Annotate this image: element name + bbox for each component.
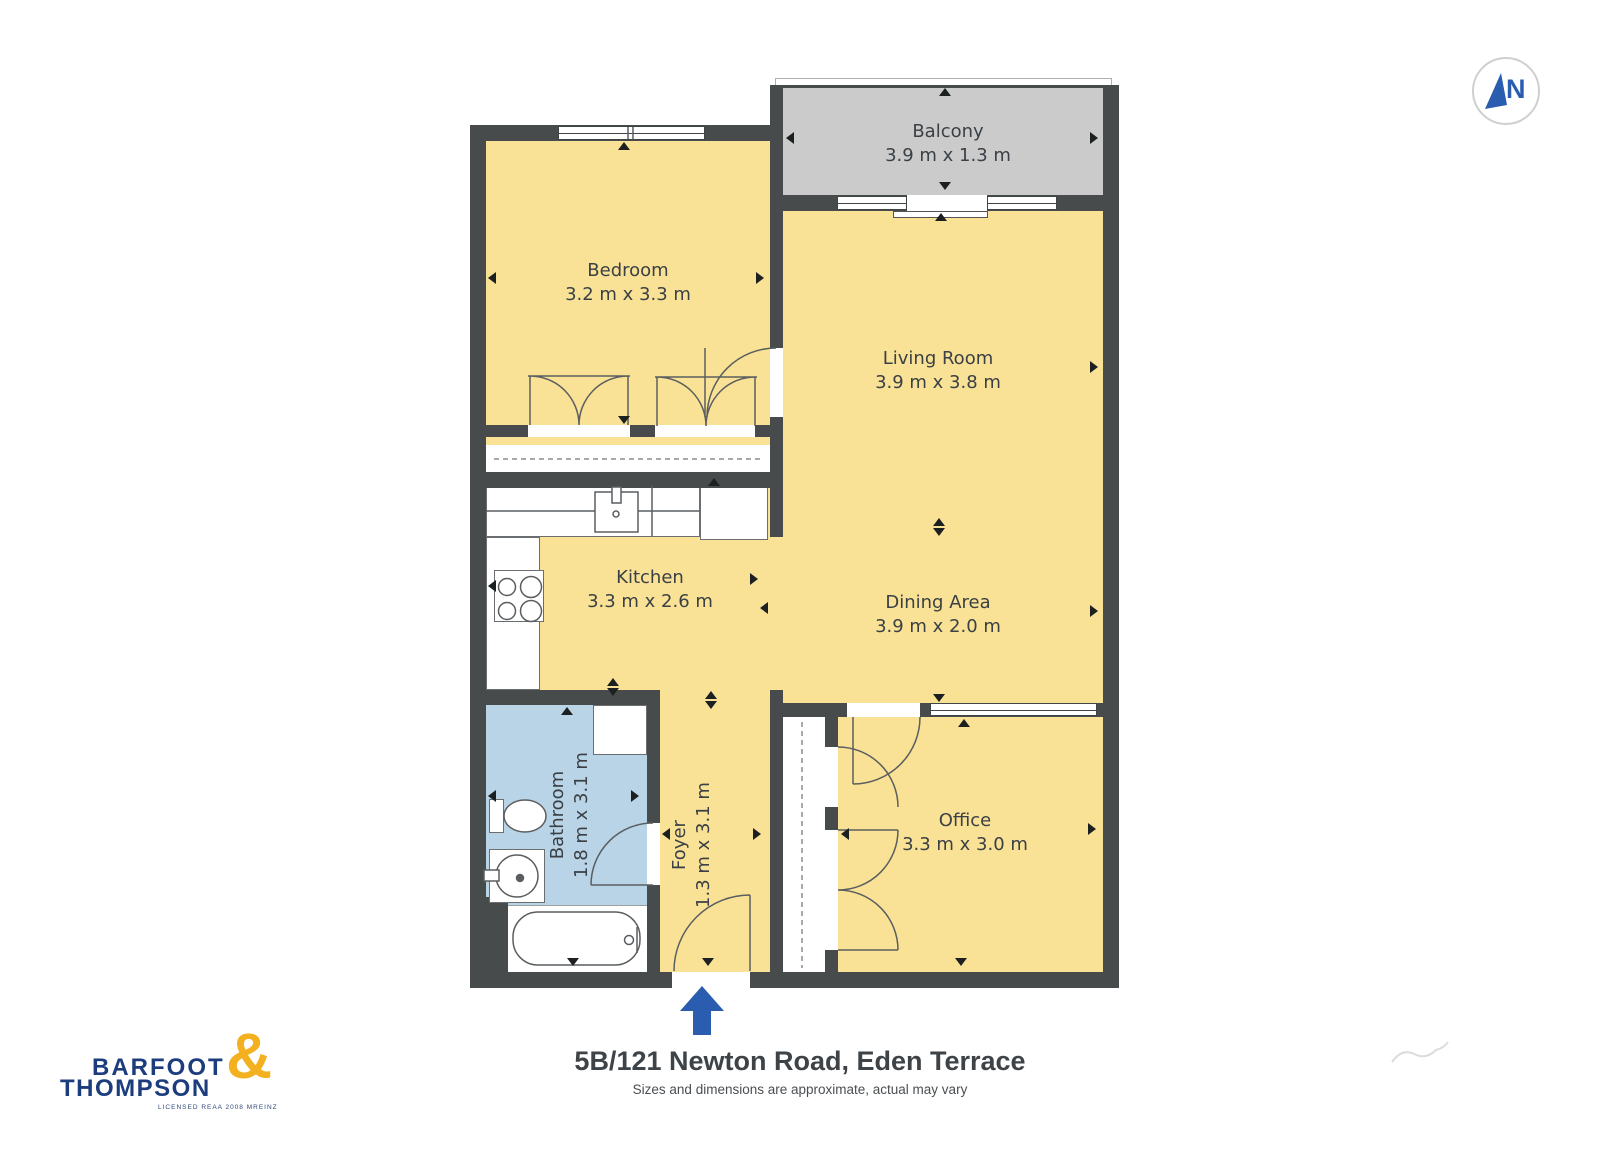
dim-arrow [705,691,717,699]
brand-logo: BARFOOT THOMPSON & LICENSED REAA 2008 MR… [55,1028,285,1118]
wall-bedroom-bottom-b [630,425,655,437]
bedroom-window [558,126,705,140]
room-label-living-room: Living Room3.9 m x 3.8 m [828,347,1048,395]
dim-arrow [705,701,717,709]
wall-left [470,125,486,988]
room-label-office: Office3.3 m x 3.0 m [855,809,1075,857]
dim-arrow [1090,132,1098,144]
dim-arrow [1088,823,1096,835]
office-door-opening [847,703,920,717]
kitchen-counter [486,485,700,537]
dim-arrow [753,828,761,840]
wardrobe-opening-2 [655,425,755,437]
room-label-kitchen: Kitchen3.3 m x 2.6 m [540,566,760,614]
wall-wardrobe-bottom [470,472,770,488]
balcony-slider-opening [907,195,987,211]
room-label-foyer: Foyer1.3 m x 3.1 m [668,735,716,955]
dim-arrow [618,416,630,424]
office-window [930,703,1097,716]
floor-plan: Balcony3.9 m x 1.3 m Bedroom3.2 m x 3.3 … [0,0,1600,1167]
wall-bottom [470,972,1119,988]
dim-arrow [488,790,496,802]
compass-north-label: N [1506,74,1526,105]
dim-arrow [841,828,849,840]
wall-balcony-left [770,85,783,195]
entry-arrow [680,986,724,1036]
dim-arrow [935,213,947,221]
fridge [700,486,768,540]
room-label-bedroom: Bedroom3.2 m x 3.3 m [518,259,738,307]
wardrobe-opening-1 [528,425,630,437]
room-label-balcony: Balcony3.9 m x 1.3 m [838,120,1058,168]
wall-right [1103,85,1119,988]
dim-arrow [1090,361,1098,373]
logo-word-thompson: THOMPSON [60,1075,211,1103]
wall-bathroom-top [470,690,660,705]
logo-license-text: LICENSED REAA 2008 MREINZ [158,1104,278,1111]
room-label-bathroom: Bathroom1.8 m x 3.1 m [546,705,594,925]
dim-arrow [708,478,720,486]
dim-arrow [939,182,951,190]
wall-bedroom-bottom-a [486,425,528,437]
dim-arrow [607,688,619,696]
dim-arrow [607,678,619,686]
stove [494,570,544,622]
shower-unit [593,705,647,755]
entry-arrow-stem [693,1010,711,1035]
dim-arrow [618,142,630,150]
dim-arrow [756,272,764,284]
dim-arrow [760,602,768,614]
wall-bedroom-bottom-c [755,425,770,437]
dim-arrow [488,580,496,592]
vanity-sink-unit [489,849,545,903]
dim-arrow [786,132,794,144]
logo-ampersand: & [226,1019,272,1093]
dim-arrow [955,958,967,966]
bedroom-wardrobe [486,445,770,472]
dim-arrow [933,518,945,526]
dim-arrow [933,528,945,536]
entry-arrow-head [680,986,724,1011]
dim-arrow [1090,605,1098,617]
dim-arrow [631,790,639,802]
toilet-tank [489,799,504,833]
office-closet-opening-2 [825,830,838,950]
wall-foyer-right [770,690,783,988]
dim-arrow [567,958,579,966]
dim-arrow [488,272,496,284]
balcony-window-right [987,196,1057,210]
hall-cupboard [783,717,825,972]
north-compass: N [1472,57,1540,125]
balcony-window-left [837,196,907,210]
bedroom-door-opening [770,348,783,417]
office-closet-opening-1 [825,747,838,807]
dim-arrow [933,694,945,702]
dim-arrow [958,719,970,727]
room-label-dining-area: Dining Area3.9 m x 2.0 m [828,591,1048,639]
bathroom-door-opening [647,823,660,885]
dim-arrow [939,88,951,96]
dim-arrow [702,958,714,966]
